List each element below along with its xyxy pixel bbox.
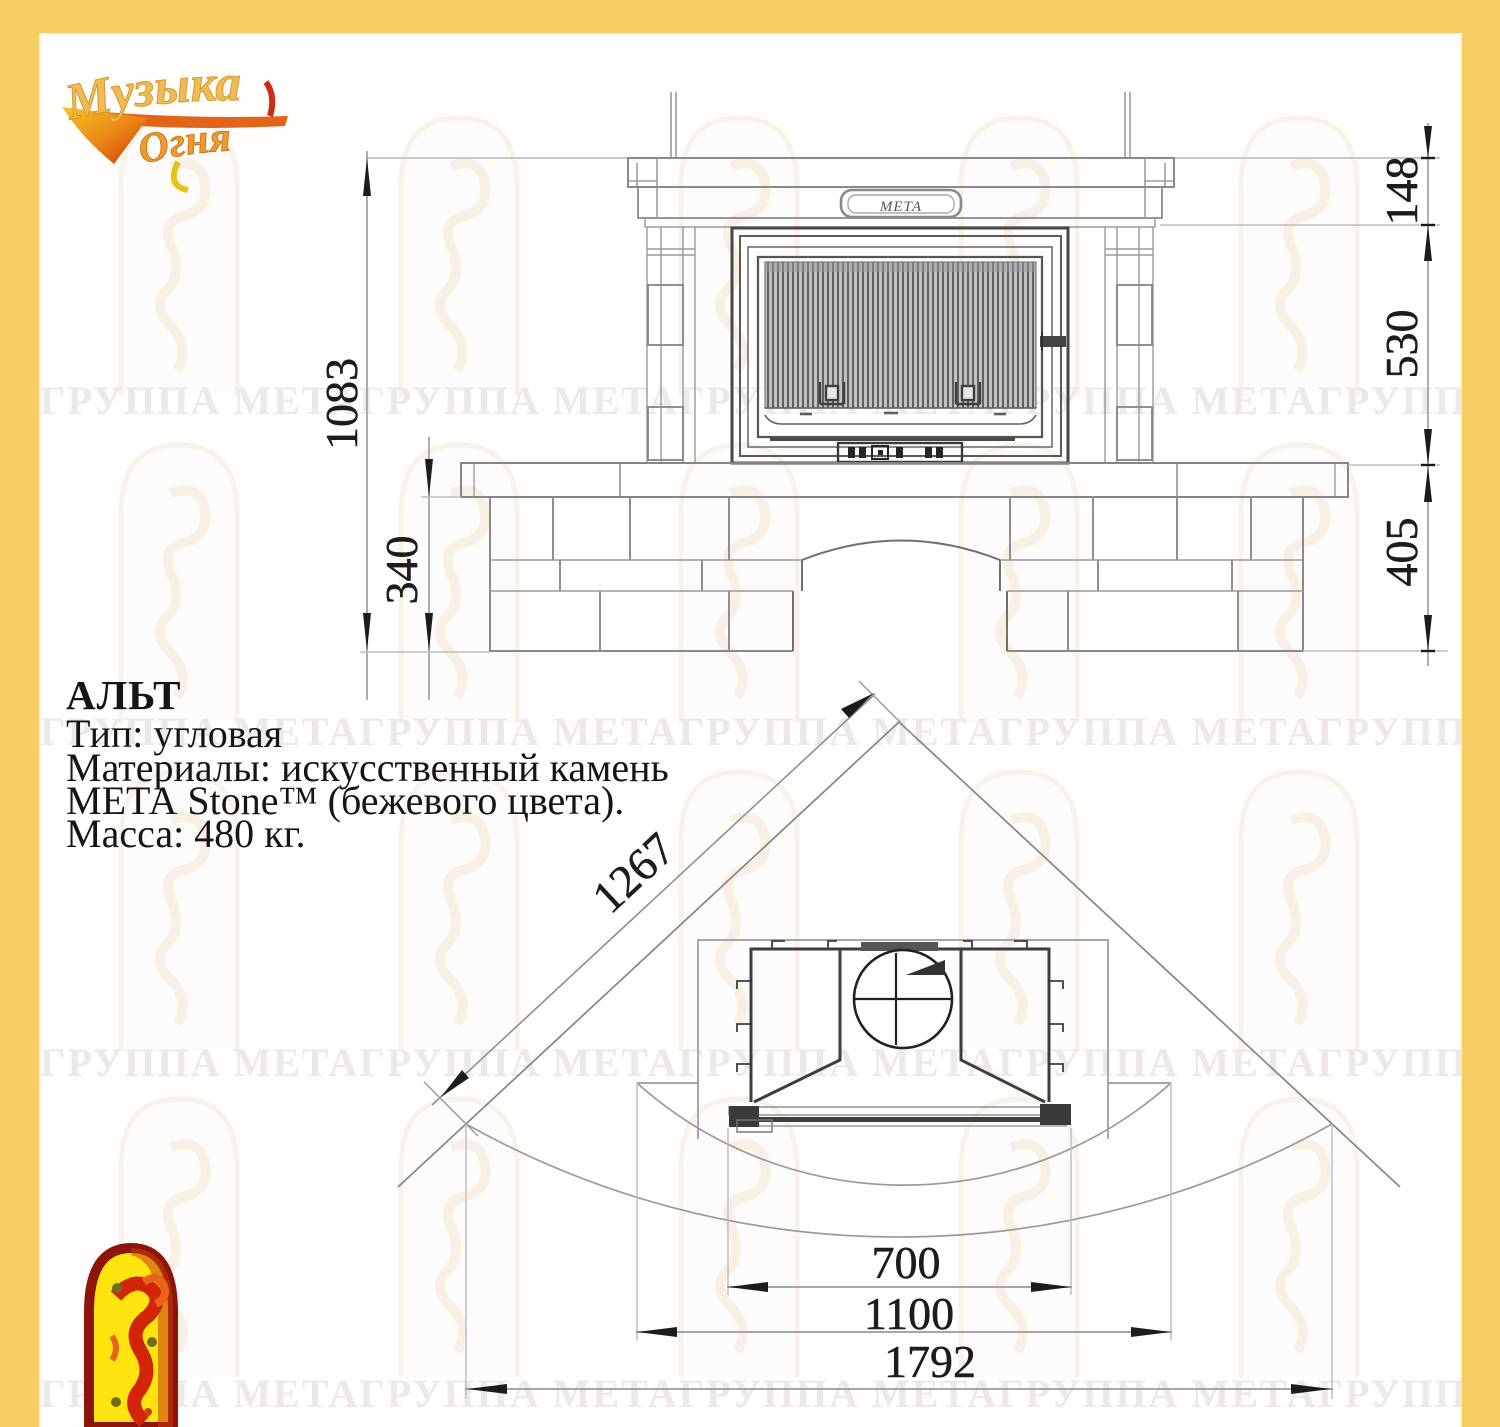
svg-text:1083: 1083 [316, 358, 367, 450]
svg-text:405: 405 [1376, 518, 1427, 587]
svg-text:1792: 1792 [884, 1336, 976, 1387]
svg-text:ГРУППА МЕТАГРУППА МЕТАГРУППА М: ГРУППА МЕТАГРУППА МЕТАГРУППА МЕТАГРУППА … [40, 1371, 1499, 1416]
svg-text:340: 340 [376, 536, 427, 605]
svg-text:Масса: 480 кг.: Масса: 480 кг. [66, 811, 306, 856]
svg-text:148: 148 [1376, 157, 1427, 226]
svg-text:МЕТА: МЕТА [879, 199, 922, 215]
svg-text:ГРУППА МЕТАГРУППА МЕТАГРУППА М: ГРУППА МЕТАГРУППА МЕТАГРУППА МЕТАГРУППА … [40, 1040, 1499, 1085]
svg-text:700: 700 [872, 1237, 941, 1288]
svg-text:530: 530 [1376, 310, 1427, 379]
svg-text:1100: 1100 [864, 1288, 954, 1339]
